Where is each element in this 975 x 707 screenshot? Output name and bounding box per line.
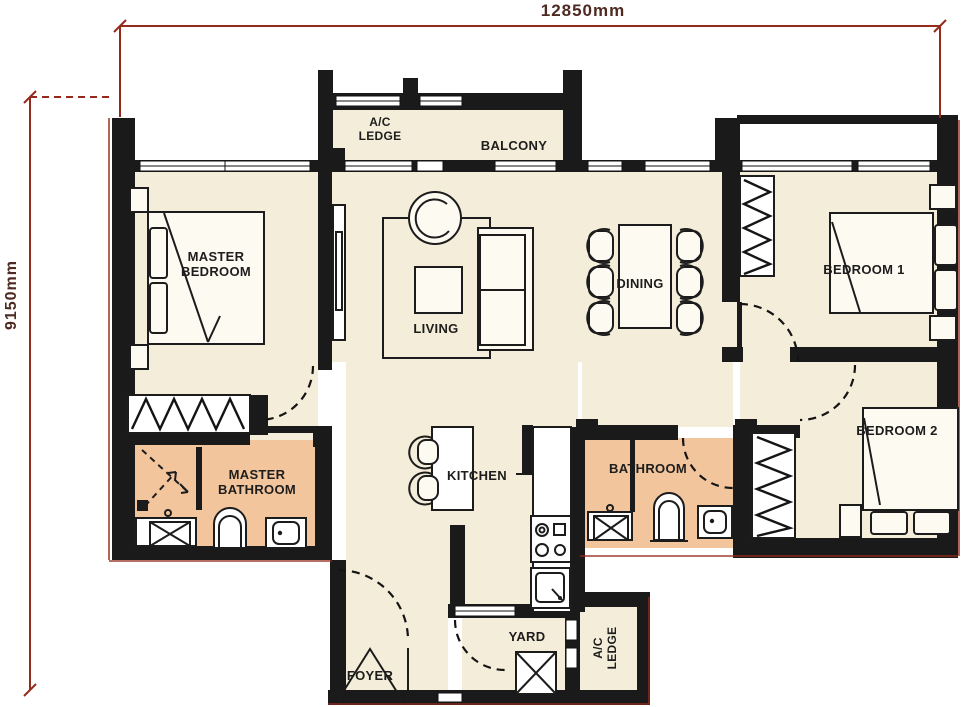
room-label-bathroom: BATHROOM xyxy=(588,461,708,476)
room-label-foyer: FOYER xyxy=(332,668,408,683)
room-label-master-bedroom: MASTER BEDROOM xyxy=(161,249,271,279)
dimension-left-label: 9150mm xyxy=(3,240,23,350)
room-label-bedroom2: BEDROOM 2 xyxy=(839,423,955,438)
floor-plan-drawing xyxy=(0,0,975,707)
room-label-kitchen: KITCHEN xyxy=(429,468,525,483)
room-label-living: LIVING xyxy=(398,321,474,336)
room-label-yard: YARD xyxy=(489,629,565,644)
yard-fixtures xyxy=(516,652,556,694)
dimension-top-label: 12850mm xyxy=(503,1,663,21)
tv-console xyxy=(333,205,345,340)
wardrobe-bedroom2 xyxy=(752,433,795,538)
floor-plan: 12850mm 9150mm MASTER BEDROOM LIVING DIN… xyxy=(0,0,975,707)
wardrobe-master xyxy=(128,395,250,433)
bedroom1-door-leaf xyxy=(737,302,742,360)
room-label-bedroom1: BEDROOM 1 xyxy=(806,262,922,277)
coffee-table xyxy=(415,267,462,313)
room-label-dining: DINING xyxy=(602,276,678,291)
wardrobe-bedroom1 xyxy=(740,176,774,276)
floor-trap xyxy=(137,500,148,511)
room-label-ac-ledge-bottom: A/C LEDGE xyxy=(591,616,625,680)
entry-door-leaf xyxy=(336,568,340,640)
room-label-ac-ledge-top: A/C LEDGE xyxy=(354,115,406,143)
stove xyxy=(531,516,571,562)
room-label-balcony: BALCONY xyxy=(466,138,562,153)
ac-unit-mark xyxy=(333,148,345,160)
room-label-master-bathroom: MASTER BATHROOM xyxy=(195,467,319,497)
